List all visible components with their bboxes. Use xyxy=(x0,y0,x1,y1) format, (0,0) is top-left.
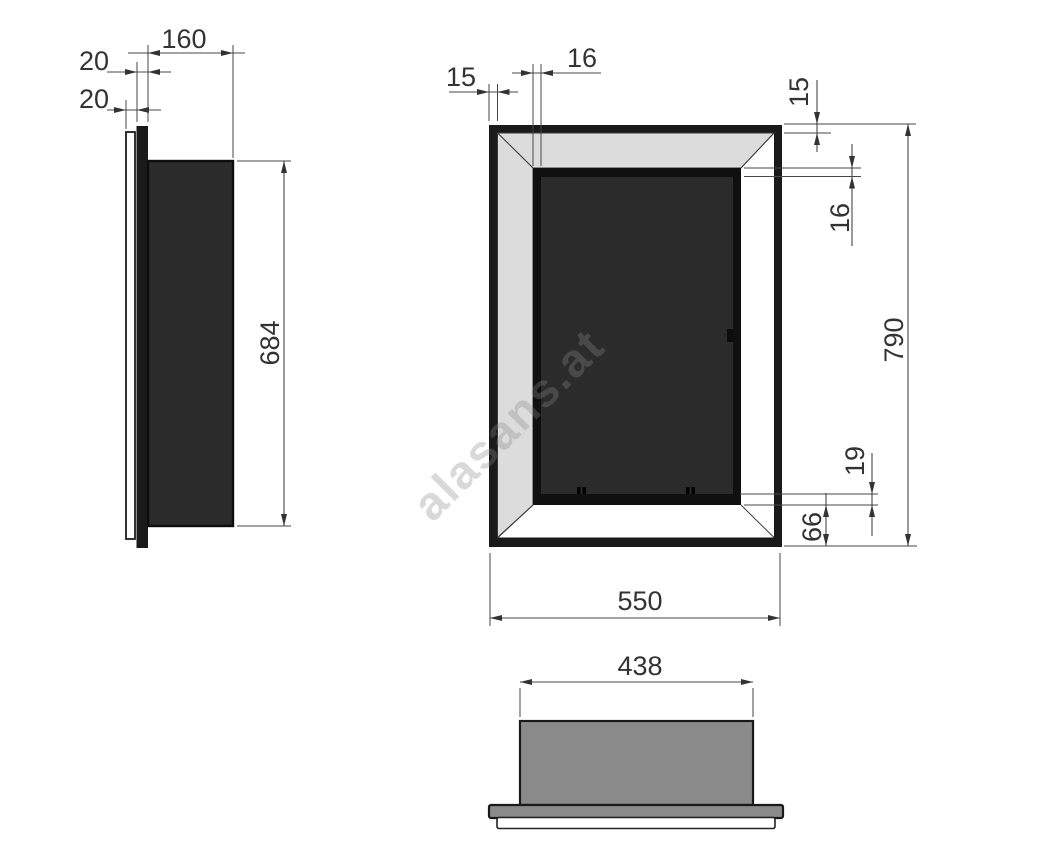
bottom-view: 438 xyxy=(489,651,783,829)
dim-front-bottom-clearance-value: 66 xyxy=(797,512,827,542)
dim-bottom-body-width: 438 xyxy=(520,651,753,717)
dim-front-frame-top: 15 xyxy=(784,77,916,152)
dim-side-flange-offset-value: 20 xyxy=(79,84,109,114)
dim-front-burner-inset-value: 19 xyxy=(840,446,870,476)
dim-front-overall-width-value: 550 xyxy=(617,586,662,616)
dim-side-body-height-value: 684 xyxy=(255,320,285,365)
technical-drawing: 160 20 20 684 xyxy=(0,0,1049,866)
dim-front-inner-left-value: 16 xyxy=(567,43,597,73)
drawing-svg: 160 20 20 684 xyxy=(0,0,1049,866)
dim-front-frame-left-value: 15 xyxy=(446,62,476,92)
bottom-base xyxy=(497,818,775,829)
dim-side-flange-offset: 20 xyxy=(79,84,161,129)
dim-side-depth-value: 160 xyxy=(161,24,206,54)
bottom-flange xyxy=(489,805,783,818)
front-bevel-left xyxy=(498,133,534,538)
bottom-body xyxy=(520,721,753,805)
dim-front-inner-top-value: 16 xyxy=(825,203,855,233)
dim-front-overall-height-value: 790 xyxy=(879,317,909,362)
dim-side-body-height: 684 xyxy=(237,161,291,526)
dim-front-bottom-clearance: 66 xyxy=(797,493,829,546)
front-bevel-top xyxy=(498,133,775,168)
dim-bottom-body-width-value: 438 xyxy=(617,651,662,681)
frame-side-profile xyxy=(137,126,149,548)
firebox-side-body xyxy=(148,161,233,526)
mounting-plate xyxy=(126,132,135,539)
front-view: 15 16 15 16 xyxy=(446,43,917,626)
side-view: 160 20 20 684 xyxy=(79,24,291,548)
dim-side-frame-depth-value: 20 xyxy=(79,46,109,76)
dim-front-overall-width: 550 xyxy=(490,553,780,626)
dim-front-frame-left: 15 xyxy=(446,62,518,121)
latch-mark xyxy=(727,329,733,342)
dim-front-frame-top-value: 15 xyxy=(784,77,814,107)
